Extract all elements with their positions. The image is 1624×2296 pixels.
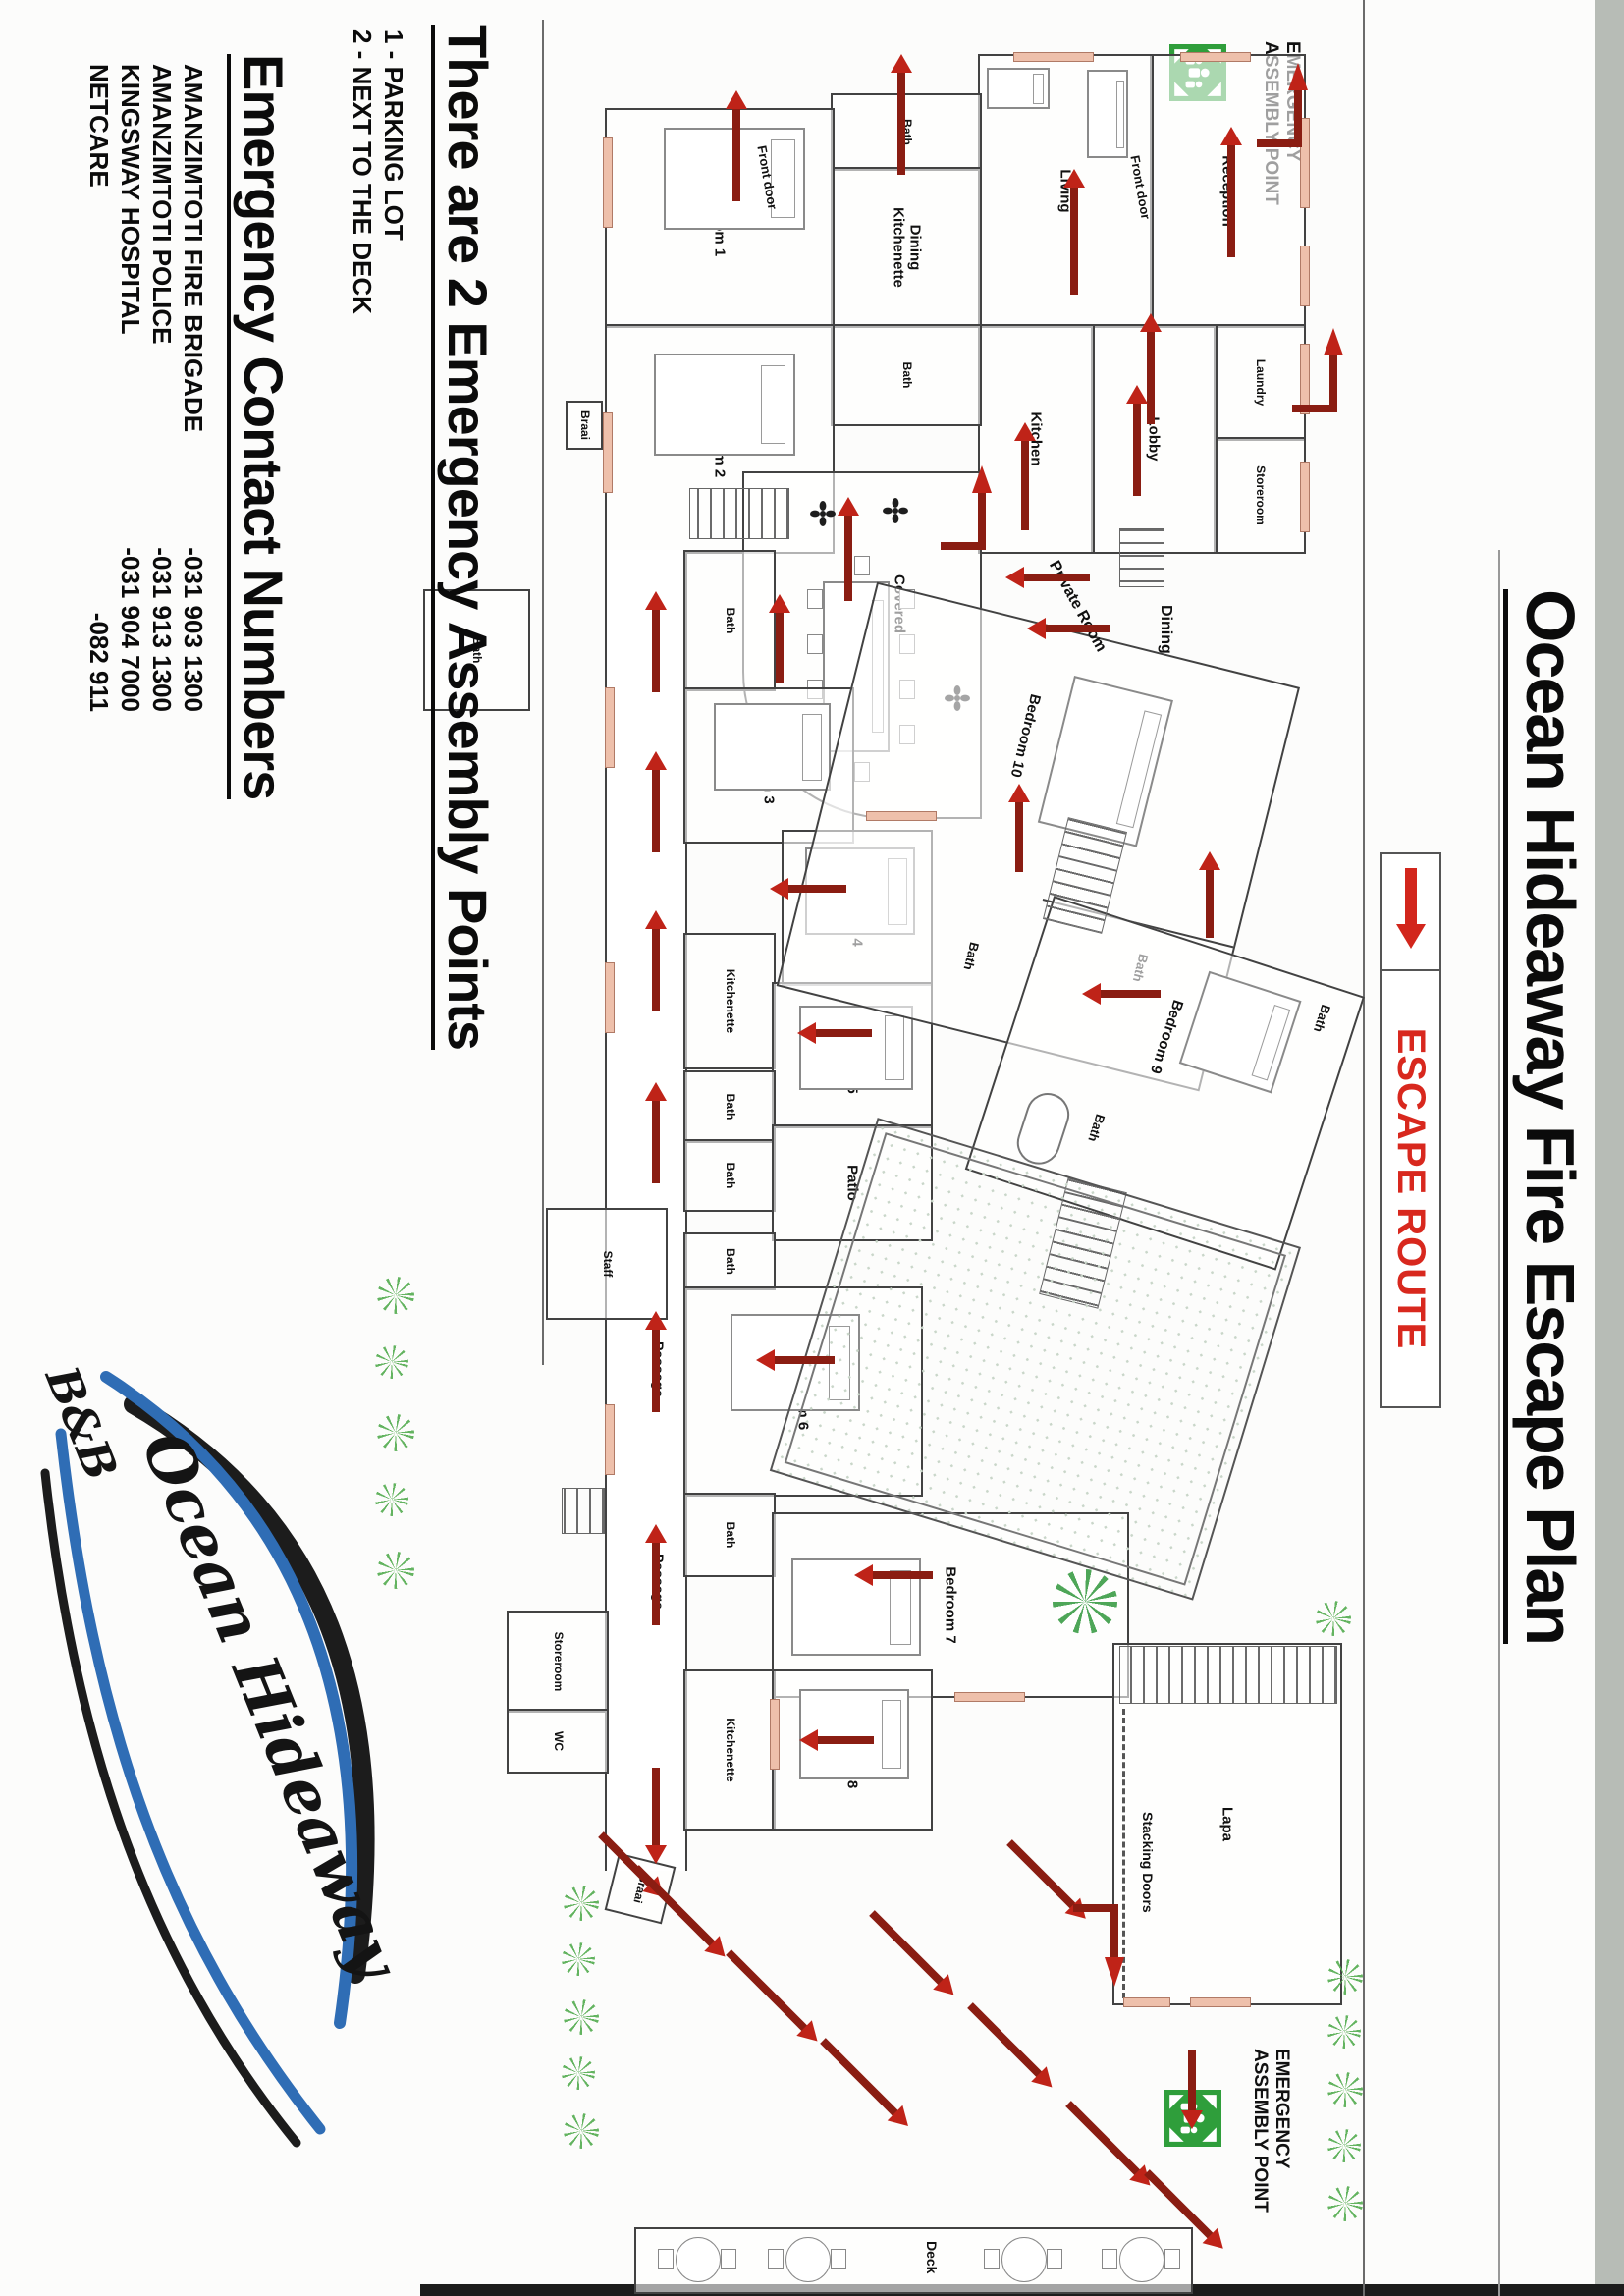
sofa (987, 68, 1050, 109)
deck-chair (831, 2249, 846, 2269)
room-label: Lapa (1218, 1807, 1235, 1841)
room-living: Living (978, 54, 1154, 328)
escape-arrow (872, 1571, 933, 1579)
room-label: Bath (723, 608, 736, 634)
escape-arrow (652, 1329, 660, 1412)
stairs (562, 1488, 605, 1534)
escape-arrow (1006, 1839, 1076, 1909)
divider-line (1498, 550, 1500, 2296)
deck-chair (768, 2249, 784, 2269)
escape-arrow (1065, 2101, 1140, 2175)
bed (1179, 971, 1302, 1094)
stacking-doors-label: Stacking Doors (1140, 1812, 1155, 1913)
contact-name: NETCARE (86, 64, 112, 188)
landscape-document: Ocean Hideaway Fire Escape Plan ESCAPE R… (0, 0, 1624, 2296)
window-marker (605, 687, 615, 768)
contact-number: -031 904 7000 (118, 547, 143, 712)
contact-number: -031 913 1300 (149, 547, 175, 712)
page-title: Ocean Hideaway Fire Escape Plan (1503, 589, 1585, 1644)
deck-table (785, 2237, 831, 2282)
room-storeroom-1: Storeroom (1214, 437, 1306, 554)
room-label: Storeroom (551, 1632, 565, 1692)
room-bath-b: Bath (831, 324, 982, 426)
escape-arrow (897, 72, 905, 175)
room-staff: Staff (546, 1208, 668, 1320)
escape-arrow (776, 612, 784, 683)
deck-chair (1164, 2249, 1180, 2269)
window-marker (1180, 52, 1251, 62)
escape-arrow (774, 1356, 835, 1364)
escape-arrow (1100, 990, 1161, 998)
escape-arrow (1045, 625, 1110, 632)
shrub (1327, 2015, 1361, 2049)
legend-arrow-cell (1382, 854, 1439, 971)
ocean-hideaway-logo: Ocean Hideaway B&B (24, 1296, 446, 2180)
room-dining-kitchenette: Dining Kitchenette (831, 167, 982, 328)
fence-line (542, 20, 544, 1365)
dining-area-label: Dining (1157, 605, 1174, 654)
contacts-heading: Emergency Contact Numbers (227, 54, 291, 799)
contact-row: AMANZIMTOTI FIRE BRIGADE -031 903 1300 (181, 64, 206, 712)
contact-row: KINGSWAY HOSPITAL -031 904 7000 (118, 64, 143, 712)
contact-name: AMANZIMTOTI FIRE BRIGADE (181, 64, 206, 432)
escape-arrow (967, 2002, 1042, 2077)
room-label: Staff (600, 1251, 614, 1278)
escape-arrow (1188, 2050, 1196, 2111)
escape-arrow (1070, 187, 1078, 295)
room-label: Laundry (1253, 359, 1267, 406)
room-label: Dining Kitchenette (890, 193, 924, 301)
bed (799, 1006, 913, 1090)
escape-arrow (1015, 801, 1023, 872)
escape-arrow (1227, 144, 1235, 257)
room-label: Storeroom (1253, 465, 1267, 525)
escape-arrow-bent (933, 462, 996, 552)
escape-arrow (1206, 869, 1214, 938)
room-label: Kitchenette (723, 1718, 736, 1781)
bed (1038, 676, 1173, 847)
escape-arrow (869, 1910, 944, 1985)
assembly-point-2-label: EMERGENCY ASSEMBLY POINT (1249, 2049, 1292, 2213)
bed (654, 354, 795, 456)
escape-arrow (817, 1736, 874, 1744)
escape-route-label: ESCAPE ROUTE (1391, 971, 1431, 1406)
room-kitchenette-1: Kitchenette (683, 933, 776, 1069)
window-marker (866, 811, 937, 821)
window-marker (1190, 1997, 1251, 2007)
deck-table (1001, 2237, 1047, 2282)
contact-number: -031 903 1300 (181, 547, 206, 712)
stairs (689, 488, 789, 539)
window-marker (770, 1699, 780, 1770)
contact-name: KINGSWAY HOSPITAL (118, 64, 143, 334)
patio-chair (807, 589, 823, 609)
contact-number: -082 911 (86, 613, 112, 712)
shrub (1327, 2129, 1361, 2162)
patio-chair (854, 556, 870, 575)
deck-chair (984, 2249, 1000, 2269)
window-marker (603, 412, 613, 493)
escape-arrow (1021, 440, 1029, 530)
bathtub (1011, 1087, 1075, 1170)
deck-chair (1047, 2249, 1062, 2269)
deck-table (1119, 2237, 1164, 2282)
room-label: Bedroom 9 (1146, 998, 1185, 1076)
escape-arrow (652, 769, 660, 852)
room-label: Bedroom 7 (942, 1566, 958, 1643)
room-label: Bedroom 10 (1006, 692, 1043, 779)
escape-arrow (844, 515, 852, 601)
escape-arrow (652, 609, 660, 692)
shrub (564, 1999, 599, 2035)
assembly-points-heading: There are 2 Emergency Assembly Points (431, 25, 495, 1050)
scan-edge-top (1595, 0, 1624, 2296)
deck-label: Deck (924, 2241, 939, 2273)
window-marker (1123, 1997, 1170, 2007)
contact-row: AMANZIMTOTI POLICE -031 913 1300 (149, 64, 175, 712)
shrub (1327, 2186, 1363, 2221)
escape-route-legend: ESCAPE ROUTE (1380, 852, 1441, 1408)
room-bath-mid: Bath (683, 1493, 776, 1577)
room-label: Kitchenette (723, 969, 736, 1033)
assembly-point-text-line2: ASSEMBLY POINT (1249, 2049, 1271, 2213)
contact-row: NETCARE -082 911 (86, 64, 112, 712)
shrub (564, 2113, 599, 2149)
room-label: Bath (899, 362, 913, 389)
scanned-fire-escape-plan: Ocean Hideaway Fire Escape Plan ESCAPE R… (0, 0, 1624, 2296)
escape-arrow (652, 1542, 660, 1625)
escape-arrow (652, 1100, 660, 1183)
escape-arrow (1023, 574, 1090, 581)
sofa (1087, 70, 1128, 158)
escape-arrow-bent (1249, 59, 1312, 149)
deck-table (676, 2237, 721, 2282)
room-label: Bath (1085, 1112, 1108, 1143)
window-marker (605, 1404, 615, 1475)
escape-arrow (1147, 331, 1155, 424)
patio-chair (807, 634, 823, 654)
room-bath-pair-1: Bath (683, 1070, 776, 1143)
escape-arrow (652, 1768, 660, 1846)
plan-boundary-line (1363, 0, 1365, 2296)
ceiling-fan-icon (810, 501, 836, 526)
room-bath-f: Bath (683, 1232, 776, 1290)
room-wc: WC (507, 1709, 609, 1774)
palm-tree (1053, 1569, 1117, 1634)
assembly-point-item-1: 1 - PARKING LOT (381, 29, 406, 241)
room-label: Bath (1311, 1003, 1333, 1034)
contact-name: AMANZIMTOTI POLICE (149, 64, 175, 345)
escape-arrow (1133, 403, 1141, 496)
escape-arrow-bent (1284, 324, 1347, 414)
deck-chair (1102, 2249, 1117, 2269)
escape-arrow (652, 928, 660, 1011)
escape-arrow (815, 1029, 872, 1037)
shrub (564, 1886, 599, 1921)
lapa-stairs (1119, 1646, 1337, 1704)
room-label: Braai (577, 410, 591, 440)
window-marker (605, 962, 615, 1033)
window-marker (1300, 246, 1310, 306)
ceiling-fan-icon (883, 498, 908, 523)
escape-arrow (820, 2038, 898, 2116)
room-bedroom-1: Bedroom 1 (605, 108, 835, 328)
assembly-point-text-line1: EMERGENCY (1271, 2049, 1292, 2213)
assembly-point-item-2: 2 - NEXT TO THE DECK (350, 29, 375, 314)
room-bath-pair-2: Bath (683, 1139, 776, 1212)
bed (714, 703, 831, 791)
window-marker (954, 1692, 1025, 1702)
room-label: Bath (723, 1522, 736, 1549)
room-label: Bath (723, 1163, 736, 1189)
escape-arrow (787, 885, 846, 893)
escape-arrow (732, 108, 740, 201)
deck-chair (721, 2249, 736, 2269)
shrub (1316, 1601, 1351, 1636)
room-label: Bath (723, 1248, 736, 1275)
window-marker (1300, 462, 1310, 532)
shrub (562, 2056, 595, 2090)
stairs (1119, 528, 1164, 587)
deck-chair (658, 2249, 674, 2269)
room-bath-a: Bath (831, 93, 982, 171)
room-storeroom-2: Storeroom (507, 1611, 609, 1713)
escape-arrow-bent (1065, 1900, 1128, 1991)
escape-route-arrow-icon (1405, 868, 1417, 925)
room-kitchenette-2: Kitchenette (683, 1669, 776, 1831)
window-marker (1013, 52, 1094, 62)
shrub (562, 1942, 595, 1976)
room-label: WC (551, 1731, 565, 1751)
room-bedroom-8: Bedroom 8 (772, 1669, 933, 1831)
room-label: Bath (960, 941, 981, 971)
braai-1: Braai (566, 401, 603, 450)
shrub (1327, 1959, 1363, 1995)
window-marker (603, 137, 613, 228)
room-label: Bath (723, 1094, 736, 1121)
escape-arrow (726, 1949, 807, 2031)
room-bath-cluster: Bath (683, 550, 776, 691)
shrub (1327, 2072, 1363, 2107)
